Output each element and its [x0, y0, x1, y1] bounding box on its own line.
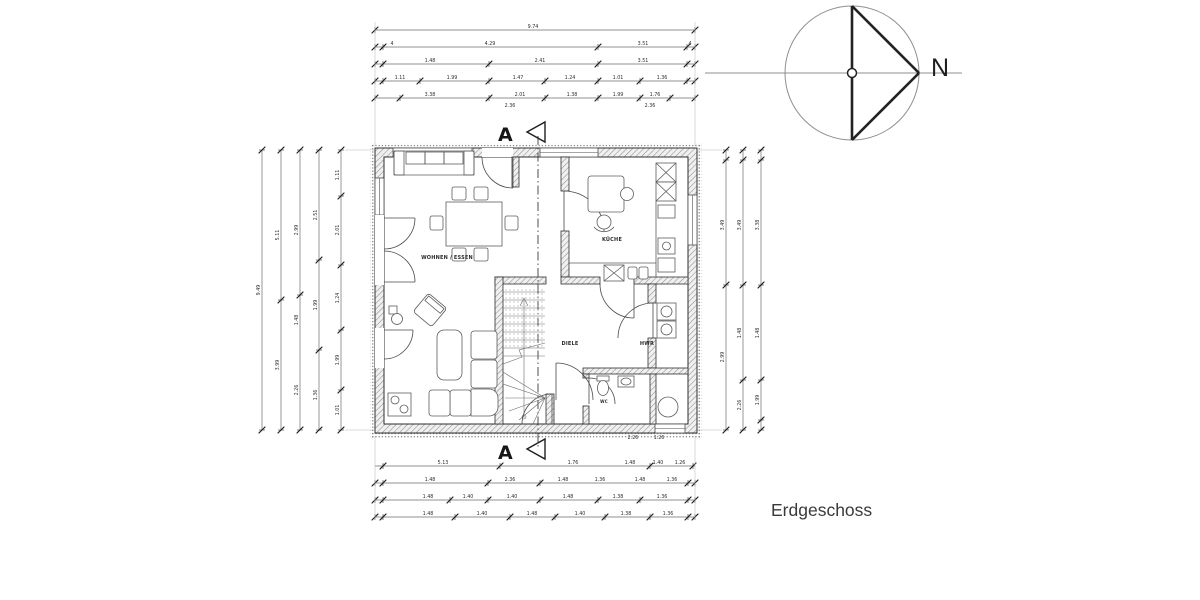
- terrace-door-opening: [375, 215, 384, 285]
- dryer: [657, 321, 676, 338]
- dimension-value: 1.36: [313, 390, 319, 401]
- washer: [657, 303, 676, 320]
- dimension-value: 1.48: [425, 477, 436, 483]
- room-label-diele: DIELE: [561, 341, 578, 347]
- compass-rose: N: [705, 6, 962, 140]
- room-label-wc: WC: [600, 399, 608, 404]
- dimension-value: 1.01: [335, 405, 341, 416]
- dimension-value: 3.49: [737, 220, 743, 231]
- dimension-value: 3.38: [755, 220, 761, 231]
- dimension-value: 1.36: [667, 477, 678, 483]
- coffee-table: [437, 330, 462, 380]
- dimension-value: 1.38: [621, 511, 632, 517]
- dimension-value: 2.01: [335, 225, 341, 236]
- dimension-value: 2.26: [737, 400, 743, 411]
- dimension-value: 9.74: [528, 24, 539, 30]
- dimension-value: 1.40: [463, 494, 474, 500]
- section-letter: A: [498, 442, 513, 464]
- dimension-value: 1.48: [737, 328, 743, 339]
- dimension-value: 1.36: [657, 494, 668, 500]
- dimension-value: 1.76: [568, 460, 579, 466]
- dimension-value: 1.99: [335, 355, 341, 366]
- dimension-value: 1.40: [507, 494, 518, 500]
- dimension-value: 3.38: [425, 92, 436, 98]
- dimension-value: 3.99: [275, 360, 281, 371]
- page-title: Erdgeschoss: [771, 500, 872, 520]
- dimension-value: 4: [688, 41, 691, 47]
- tall-cabinets: [656, 163, 676, 201]
- dimension-value: 4.29: [485, 41, 496, 47]
- dimension-value: 1.36: [595, 477, 606, 483]
- dimension-value: 1.40: [653, 460, 664, 466]
- dimension-value: 1.99: [313, 300, 319, 311]
- dimension-value: 1.99: [447, 75, 458, 81]
- dimension-value: 1.99: [755, 395, 761, 406]
- section-arrow-icon: [527, 439, 545, 459]
- dimension-value: 2.36: [505, 103, 516, 109]
- dimension-value: 1.01: [613, 75, 624, 81]
- dimension-value: 1.40: [477, 511, 488, 517]
- dimension-value: 1.24: [565, 75, 576, 81]
- dimension-value: 1.48: [635, 477, 646, 483]
- sink: [639, 267, 648, 279]
- room-label-hwr: HWR: [640, 341, 654, 347]
- room-label-kueche: KÜCHE: [602, 236, 623, 243]
- dimension-value: 2.99: [294, 225, 300, 236]
- dimension-value: 2.41: [535, 58, 546, 64]
- floor-plan: WOHNEN / ESSEN KÜCHE DIELE HWR WC: [370, 136, 702, 448]
- dimension-value: 1.26: [675, 460, 686, 466]
- dimension-value: 1.36: [663, 511, 674, 517]
- dimension-value: 1.48: [423, 511, 434, 517]
- compass-center: [848, 69, 857, 78]
- dimension-value: 1.48: [423, 494, 434, 500]
- dimension-value: 1.76: [650, 92, 661, 98]
- dimension-value: 2.51: [313, 210, 319, 221]
- counter-right: [656, 201, 675, 277]
- dimension-value: 1.38: [567, 92, 578, 98]
- section-arrow-icon: [527, 122, 545, 142]
- section-letter: A: [498, 124, 513, 146]
- dimension-value: 3.49: [720, 220, 726, 231]
- side-door-opening: [375, 328, 384, 368]
- dimension-value: 1.48: [527, 511, 538, 517]
- dimension-value: 1.48: [755, 328, 761, 339]
- floor-plan-drawing: 9.7444.293.5141.482.413.511.111.991.471.…: [0, 0, 1200, 600]
- boiler: [658, 397, 678, 417]
- dimension-value: 4: [390, 41, 393, 47]
- dimension-value: 2.36: [645, 103, 656, 109]
- stove: [388, 393, 411, 416]
- north-label: N: [931, 54, 949, 82]
- dimension-value: 1.48: [425, 58, 436, 64]
- dimension-value: 3.51: [638, 41, 649, 47]
- dimension-value: 3.51: [638, 58, 649, 64]
- dimension-value: 1.48: [294, 315, 300, 326]
- section-marker-bottom: A: [498, 439, 545, 464]
- dimension-value: 1.99: [613, 92, 624, 98]
- dimension-value: 1.38: [613, 494, 624, 500]
- dimension-value: 1.48: [625, 460, 636, 466]
- dimension-value: 1.48: [563, 494, 574, 500]
- dimension-value: 2.36: [505, 477, 516, 483]
- kitchen-table: [588, 176, 624, 212]
- chair: [597, 215, 611, 229]
- entrance-opening: [482, 148, 513, 157]
- dimension-value: 1.11: [335, 170, 341, 181]
- dimension-value: 5.13: [438, 460, 449, 466]
- dimension-value: 9.49: [256, 285, 262, 296]
- dimension-value: 2.26: [294, 385, 300, 396]
- toilet: [598, 381, 609, 396]
- dimension-value: 1.47: [513, 75, 524, 81]
- dimension-value: 1.36: [657, 75, 668, 81]
- sink: [628, 267, 637, 279]
- dimension-value: 1.11: [395, 75, 406, 81]
- room-label-wohnen-essen: WOHNEN / ESSEN: [421, 255, 473, 261]
- scanned-floor-plan-page: 9.7444.293.5141.482.413.511.111.991.471.…: [0, 0, 1200, 600]
- dimension-value: 1.24: [335, 293, 341, 304]
- dimension-value: 2.99: [720, 352, 726, 363]
- dimension-value: 1.48: [558, 477, 569, 483]
- dimension-value: 1.40: [575, 511, 586, 517]
- sofa: [394, 151, 474, 175]
- dimension-value: 5.11: [275, 230, 281, 241]
- dimension-value: 2.01: [515, 92, 526, 98]
